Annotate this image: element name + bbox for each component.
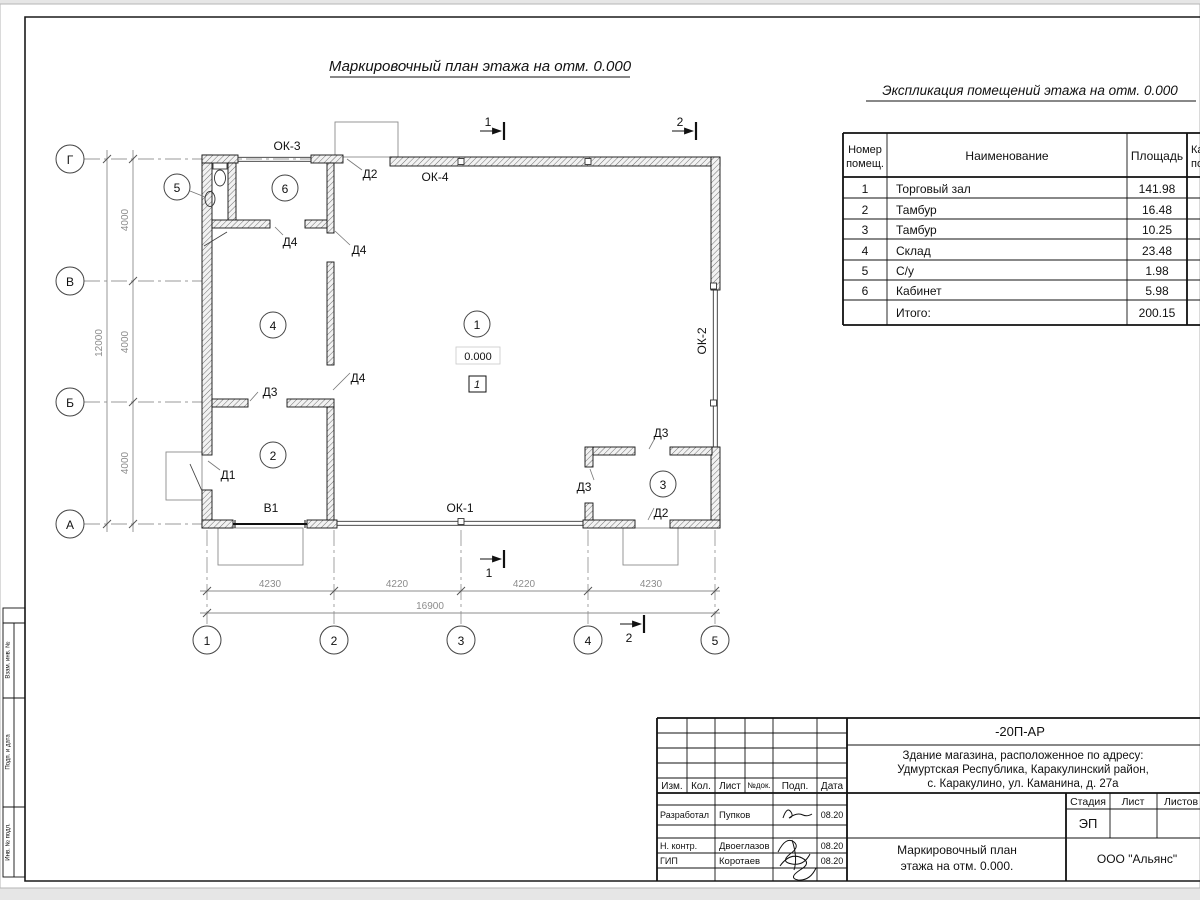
door-label-d3-1: Д3 xyxy=(263,385,278,399)
door-label-d4-3: Д4 xyxy=(351,371,366,385)
svg-text:1: 1 xyxy=(486,566,493,580)
tb-stage-label: Стадия xyxy=(1070,796,1106,808)
tb-object-line2: Удмуртская Республика, Каракулинский рай… xyxy=(897,764,1149,776)
grid-label-2: 2 xyxy=(331,634,338,648)
svg-text:2: 2 xyxy=(677,115,684,129)
floor-plan-svg: Взам. инв. № Подп. и дата Инв. № подл. М… xyxy=(0,0,1200,900)
col-header-name: Наименование xyxy=(965,149,1049,163)
col-header-num2: помещ. xyxy=(846,158,884,170)
tb-drawing-name1: Маркировочный план xyxy=(897,843,1017,857)
dim-bottom-total: 16900 xyxy=(416,601,444,612)
tb-izm: Изм. xyxy=(661,781,682,792)
grid-label-4: 4 xyxy=(585,634,592,648)
door-label-d2-bottom: Д2 xyxy=(654,506,669,520)
row-area: 141.98 xyxy=(1139,182,1176,196)
tb-doc-number: -20П-АР xyxy=(995,724,1045,739)
axis-label-a: А xyxy=(66,518,74,532)
door-label-d2-top: Д2 xyxy=(363,167,378,181)
col-header-area: Площадь xyxy=(1131,149,1183,163)
dim-bottom-1: 4230 xyxy=(259,579,282,590)
door-label-d4-1: Д4 xyxy=(283,235,298,249)
tb-role-1: Разработал xyxy=(660,810,709,820)
tb-ndok: №док. xyxy=(747,781,770,790)
room-number-4: 4 xyxy=(270,319,277,333)
grid-label-1: 1 xyxy=(204,634,211,648)
row-num: 3 xyxy=(862,223,869,237)
tb-date-3: 08.20 xyxy=(821,856,844,866)
col-header-cat2: по xyxy=(1191,158,1200,170)
dim-bottom-4: 4230 xyxy=(640,579,663,590)
row-area: 5.98 xyxy=(1145,284,1169,298)
row-area: 1.98 xyxy=(1145,264,1169,278)
grid-label-5: 5 xyxy=(712,634,719,648)
tb-date-2: 08.20 xyxy=(821,841,844,851)
tb-role-2: Н. контр. xyxy=(660,841,697,851)
row-num: 2 xyxy=(862,203,869,217)
row-name: Тамбур xyxy=(896,223,937,237)
col-header-cat: Ка xyxy=(1191,144,1200,156)
svg-text:1: 1 xyxy=(485,115,492,129)
window-label-ok1: ОК-1 xyxy=(447,501,474,515)
row-name: Кабинет xyxy=(896,284,942,298)
row-num: 1 xyxy=(862,182,869,196)
dim-left-1: 4000 xyxy=(120,208,131,231)
tb-date-1: 08.20 xyxy=(821,810,844,820)
tb-podp: Подп. xyxy=(782,781,809,792)
row-num: 4 xyxy=(862,244,869,258)
dim-left-2: 4000 xyxy=(120,330,131,353)
dim-bottom-3: 4220 xyxy=(513,579,536,590)
side-stamp-cell1: Взам. инв. № xyxy=(5,641,12,678)
col-header-num: Номер xyxy=(848,144,882,156)
tb-name-2: Двоеглазов xyxy=(719,841,770,852)
door-label-d1: Д1 xyxy=(221,468,236,482)
axis-label-g: Г xyxy=(67,153,74,167)
dim-bottom-2: 4220 xyxy=(386,579,409,590)
tb-drawing-name2: этажа на отм. 0.000. xyxy=(901,859,1014,873)
row-area: 10.25 xyxy=(1142,223,1172,237)
floor-type-value: 1 xyxy=(474,379,480,391)
window-label-ok4: ОК-4 xyxy=(422,170,449,184)
side-stamp-cell3: Инв. № подл. xyxy=(5,823,12,861)
room-number-5: 5 xyxy=(174,181,181,195)
grid-label-3: 3 xyxy=(458,634,465,648)
row-name: Склад xyxy=(896,244,931,258)
explication-title: Экспликация помещений этажа на отм. 0.00… xyxy=(882,83,1178,98)
row-num: 5 xyxy=(862,264,869,278)
side-stamp-cell2: Подп. и дата xyxy=(6,734,12,770)
row-name: Тамбур xyxy=(896,203,937,217)
tb-kol: Кол. xyxy=(691,781,711,792)
row-name: С/у xyxy=(896,264,914,278)
elevation-value: 0.000 xyxy=(464,351,492,363)
window-label-ok2: ОК-2 xyxy=(695,327,709,354)
tb-object-line3: с. Каракулино, ул. Каманина, д. 27а xyxy=(927,778,1119,790)
total-label: Итого: xyxy=(896,306,931,320)
svg-text:2: 2 xyxy=(626,631,633,645)
tb-role-3: ГИП xyxy=(660,856,678,866)
total-area: 200.15 xyxy=(1139,306,1176,320)
drawing-sheet: Взам. инв. № Подп. и дата Инв. № подл. М… xyxy=(0,0,1200,900)
tb-list: Лист xyxy=(719,781,741,792)
door-label-d3-2: Д3 xyxy=(654,426,669,440)
tb-data: Дата xyxy=(821,781,844,792)
room-number-6: 6 xyxy=(282,182,289,196)
axis-label-v: В xyxy=(66,275,74,289)
door-label-d4-2: Д4 xyxy=(352,243,367,257)
tb-sheets-label: Листов xyxy=(1164,796,1199,808)
plan-title: Маркировочный план этажа на отм. 0.000 xyxy=(329,58,632,75)
tb-organization: ООО "Альянс" xyxy=(1097,852,1177,866)
tb-object-line1: Здание магазина, расположенное по адресу… xyxy=(903,750,1144,762)
row-area: 23.48 xyxy=(1142,244,1172,258)
row-num: 6 xyxy=(862,284,869,298)
axis-label-b: Б xyxy=(66,396,74,410)
row-area: 16.48 xyxy=(1142,203,1172,217)
dim-left-total: 12000 xyxy=(94,329,105,357)
door-label-d3-3: Д3 xyxy=(577,480,592,494)
gate-label-v1: В1 xyxy=(264,501,279,515)
room-number-1: 1 xyxy=(474,318,481,332)
tb-name-1: Пупков xyxy=(719,810,750,821)
tb-name-3: Коротаев xyxy=(719,856,760,867)
room-number-2: 2 xyxy=(270,449,277,463)
tb-sheet-label: Лист xyxy=(1122,796,1145,808)
tb-stage-value: ЭП xyxy=(1079,816,1098,831)
room-number-3: 3 xyxy=(660,478,667,492)
row-name: Торговый зал xyxy=(896,182,971,196)
dim-left-3: 4000 xyxy=(120,451,131,474)
window-label-ok3: ОК-3 xyxy=(274,139,301,153)
